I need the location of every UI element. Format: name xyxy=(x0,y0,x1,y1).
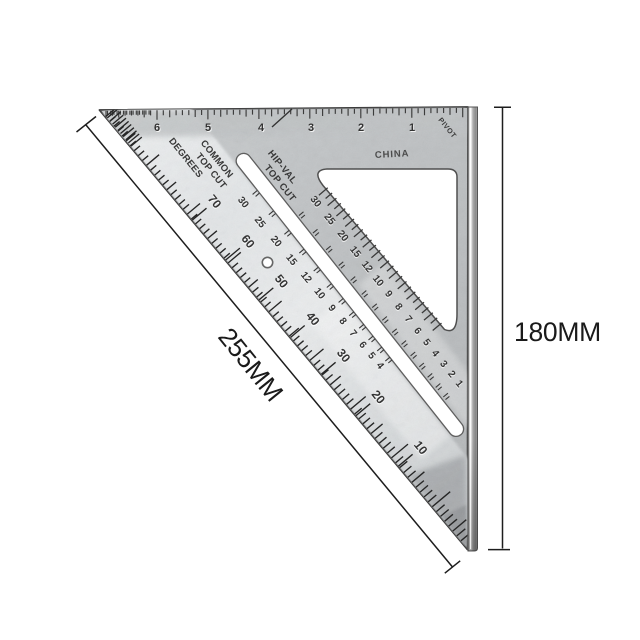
svg-text:3: 3 xyxy=(308,122,314,134)
svg-text:2: 2 xyxy=(358,122,364,134)
svg-text:CHINA: CHINA xyxy=(375,148,410,161)
svg-text:180MM: 180MM xyxy=(514,317,601,347)
svg-text:5: 5 xyxy=(205,122,211,134)
svg-text:4: 4 xyxy=(258,122,265,134)
svg-text:6: 6 xyxy=(154,122,160,134)
svg-text:255MM: 255MM xyxy=(212,322,289,407)
svg-text:1: 1 xyxy=(409,122,415,134)
